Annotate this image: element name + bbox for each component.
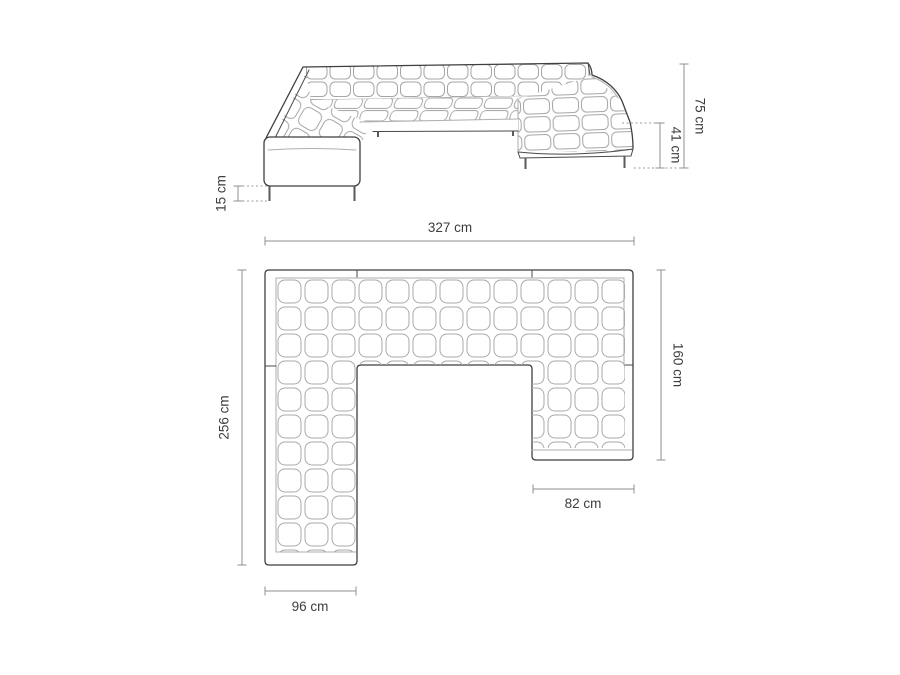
dim-left-wing-width-label: 96 cm [292,599,329,614]
plan-cushion-grid [260,265,640,565]
diagram-canvas: 75 cm 41 cm 15 cm [0,0,900,675]
dim-chaise-width-label: 82 cm [565,496,602,511]
dim-left-depth: 256 cm [217,270,247,565]
dim-right-depth-label: 160 cm [670,343,685,387]
elevation-view: 75 cm 41 cm 15 cm [214,63,708,212]
dim-left-depth-label: 256 cm [217,395,232,439]
dim-total-width: 327 cm [265,220,634,246]
plan-view: 327 cm 256 cm 160 cm 82 cm 96 cm [217,220,686,614]
dim-seat-height-label: 41 cm [668,127,683,164]
dim-chaise-width: 82 cm [533,485,634,512]
elevation-left-armrest [264,137,360,201]
dim-total-width-label: 327 cm [428,220,472,235]
sofa-dimension-diagram: 75 cm 41 cm 15 cm [0,0,900,675]
dim-leg-height: 15 cm [214,175,267,212]
dim-total-height-label: 75 cm [692,98,707,135]
dim-left-wing-width: 96 cm [265,587,356,615]
dim-right-depth: 160 cm [657,270,686,460]
elevation-seat-base [360,119,518,137]
dim-leg-height-label: 15 cm [214,175,229,212]
